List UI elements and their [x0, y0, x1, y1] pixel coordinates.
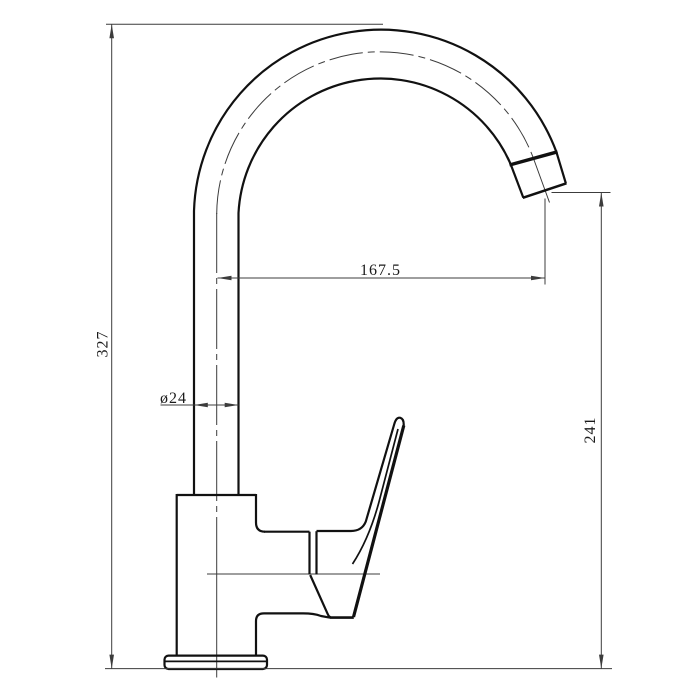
base-flange — [165, 656, 268, 669]
spout-inner-profile — [239, 79, 511, 495]
spout-centerline-arc — [217, 52, 534, 214]
dimension-label-spout-reach: 167.5 — [360, 262, 401, 279]
aerator-cap-right-edge — [557, 152, 566, 183]
side-joint-bottom-edge — [264, 613, 330, 617]
arrow-overall-top — [109, 24, 114, 38]
dimension-label-outlet-height: 241 — [582, 417, 599, 444]
arrow-outlet-bottom — [599, 655, 604, 669]
arrow-overall-bottom — [109, 655, 114, 669]
dimension-label-pipe-diameter: ø24 — [160, 390, 187, 407]
arrow-reach-left — [218, 276, 232, 281]
body-right-edge-lower — [256, 613, 264, 656]
spout-centerline-tip — [534, 159, 550, 203]
handle-lever-inner-line — [353, 429, 399, 564]
arrow-outlet-top — [599, 193, 604, 207]
handle-base-left-slant — [310, 575, 331, 618]
handle-lever-front-edge — [354, 426, 404, 618]
faucet-technical-drawing: 327 167.5 ø24 241 — [0, 0, 700, 700]
arrow-reach-right — [531, 276, 545, 281]
arrow-diameter-left — [194, 403, 208, 408]
aerator-joint-line — [510, 152, 558, 165]
technical-drawing-canvas: 327 167.5 ø24 241 — [0, 0, 700, 700]
dimension-label-overall-height: 327 — [95, 331, 112, 358]
aerator-cap-outlet-face — [523, 183, 567, 198]
body-right-edge-upper — [256, 494, 265, 532]
aerator-cap-left-edge — [511, 164, 524, 197]
arrow-diameter-right — [225, 403, 239, 408]
